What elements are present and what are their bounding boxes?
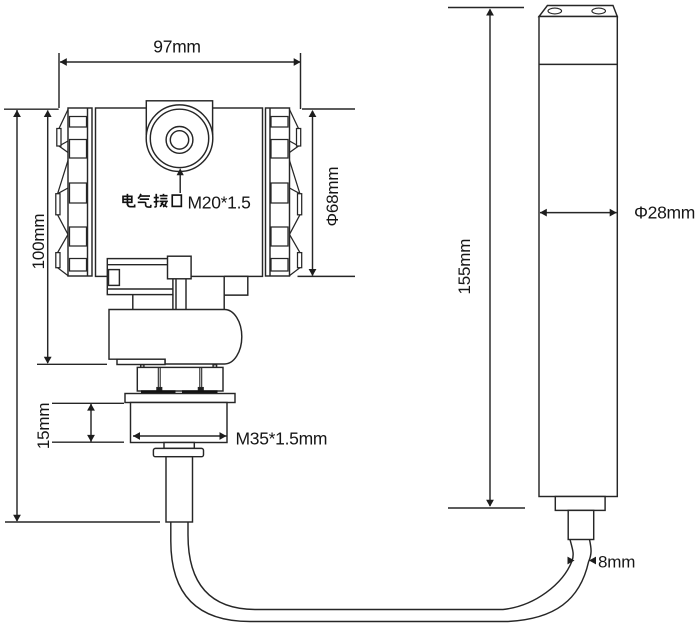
svg-text:Φ68mm: Φ68mm bbox=[323, 167, 342, 227]
svg-text:155mm: 155mm bbox=[455, 239, 474, 295]
svg-text:97mm: 97mm bbox=[153, 37, 200, 57]
svg-text:M35*1.5mm: M35*1.5mm bbox=[236, 429, 328, 449]
svg-text:Φ28mm: Φ28mm bbox=[634, 203, 695, 223]
svg-text:100mm: 100mm bbox=[29, 214, 48, 270]
svg-text:M20*1.5: M20*1.5 bbox=[188, 193, 251, 213]
svg-text:8mm: 8mm bbox=[598, 552, 635, 571]
svg-text:15mm: 15mm bbox=[34, 403, 53, 449]
